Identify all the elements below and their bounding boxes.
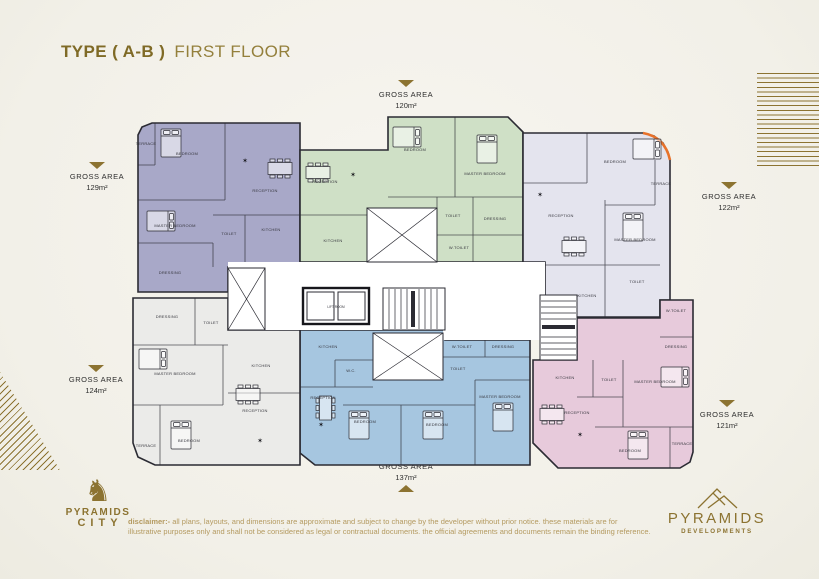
arrow-down-icon [721,182,737,189]
svg-text:✶: ✶ [350,171,356,179]
room-label: W.TOILET [666,308,687,313]
room-label: RECEPTION [564,410,589,415]
deco-lines-bottom-left [0,372,60,470]
room-label: DRESSING [665,344,688,349]
arrow-down-icon [88,365,104,372]
room-label: KITCHEN [252,363,271,368]
corridor [443,262,545,340]
room-label: MASTER BEDROOM [464,171,505,176]
room-label: TERRACE [136,141,157,146]
room-label: KITCHEN [324,238,343,243]
room-label: DRESSING [484,216,507,221]
room-label: TOILET [445,213,460,218]
room-label: KITCHEN [578,293,597,298]
disclaimer-label: disclaimer:- [128,517,170,526]
room-label: RECEPTION [252,188,277,193]
room-label: RECEPTION [312,179,337,184]
arrow-down-icon [398,80,414,87]
svg-text:✶: ✶ [242,157,248,165]
room-label: RECEPTION [242,408,267,413]
gross-area-label: GROSS AREA [364,90,448,99]
room-label: DRESSING [159,270,182,275]
room-label: TERRACE [651,181,672,186]
floor-plan: ✶ ✶ ✶ ✶ ✶ ✶ TERRACEBEDROOMRECEPTIONMASTE… [125,105,700,480]
room-label: TERRACE [672,441,693,446]
room-label: DRESSING [492,344,515,349]
room-label: BEDROOM [176,151,198,156]
room-label: BEDROOM [619,448,641,453]
svg-text:✶: ✶ [257,437,263,445]
room-label: BEDROOM [426,422,448,427]
page-title-floor: FIRST FLOOR [174,42,291,61]
pyramids-icon [694,487,740,509]
page-title: TYPE ( A-B ) FIRST FLOOR [61,42,291,62]
horse-icon: ♞ [55,477,141,507]
arrow-down-icon [89,162,105,169]
svg-text:✶: ✶ [577,431,583,439]
room-label: BEDROOM [178,438,200,443]
dev-logo-sub: DEVELOPMENTS [662,528,772,535]
svg-text:✶: ✶ [537,191,543,199]
staircase [383,288,445,330]
room-label: TERRACE [136,443,157,448]
room-label: KITCHEN [319,344,338,349]
room-label: BEDROOM [604,159,626,164]
room-label: BEDROOM [404,147,426,152]
svg-text:✶: ✶ [318,421,324,429]
room-label: TOILET [203,320,218,325]
room-label: TOILET [601,377,616,382]
room-label: MASTER BEDROOM [634,379,675,384]
room-label: TOILET [450,366,465,371]
room-label: MASTER BEDROOM [479,394,520,399]
room-label: KITCHEN [556,375,575,380]
room-label: W.TOILET [449,245,470,250]
room-label: W.TOILET [452,344,473,349]
staircase [540,295,577,360]
room-label: MASTER BEDROOM [614,237,655,242]
room-label: RECEPTION [310,395,335,400]
pyramids-developments-logo: PYRAMIDS DEVELOPMENTS [662,487,772,535]
deco-lines-top-right [757,73,819,166]
room-label: KITCHEN [262,227,281,232]
room-label: DRESSING [156,314,179,319]
brochure-page: { "title": {"bold": "TYPE ( A-B )", "reg… [0,0,819,579]
room-label: W.C. [346,368,355,373]
room-label: MASTER BEDROOM [154,223,195,228]
page-title-type: TYPE ( A-B ) [61,42,165,61]
room-label: MASTER BEDROOM [154,371,195,376]
disclaimer-body: all plans, layouts, and dimensions are a… [128,517,651,536]
room-label: RECEPTION [548,213,573,218]
arrow-down-icon [719,400,735,407]
arrow-up-icon [398,485,414,492]
room-label: BEDROOM [354,419,376,424]
disclaimer-text: disclaimer:- all plans, layouts, and dim… [128,517,652,536]
room-label: TOILET [221,231,236,236]
dev-logo-name: PYRAMIDS [662,510,772,527]
room-label: TOILET [629,279,644,284]
unit-top-right-122 [523,133,670,317]
lift-room-label: LIFT ROOM [327,305,345,309]
